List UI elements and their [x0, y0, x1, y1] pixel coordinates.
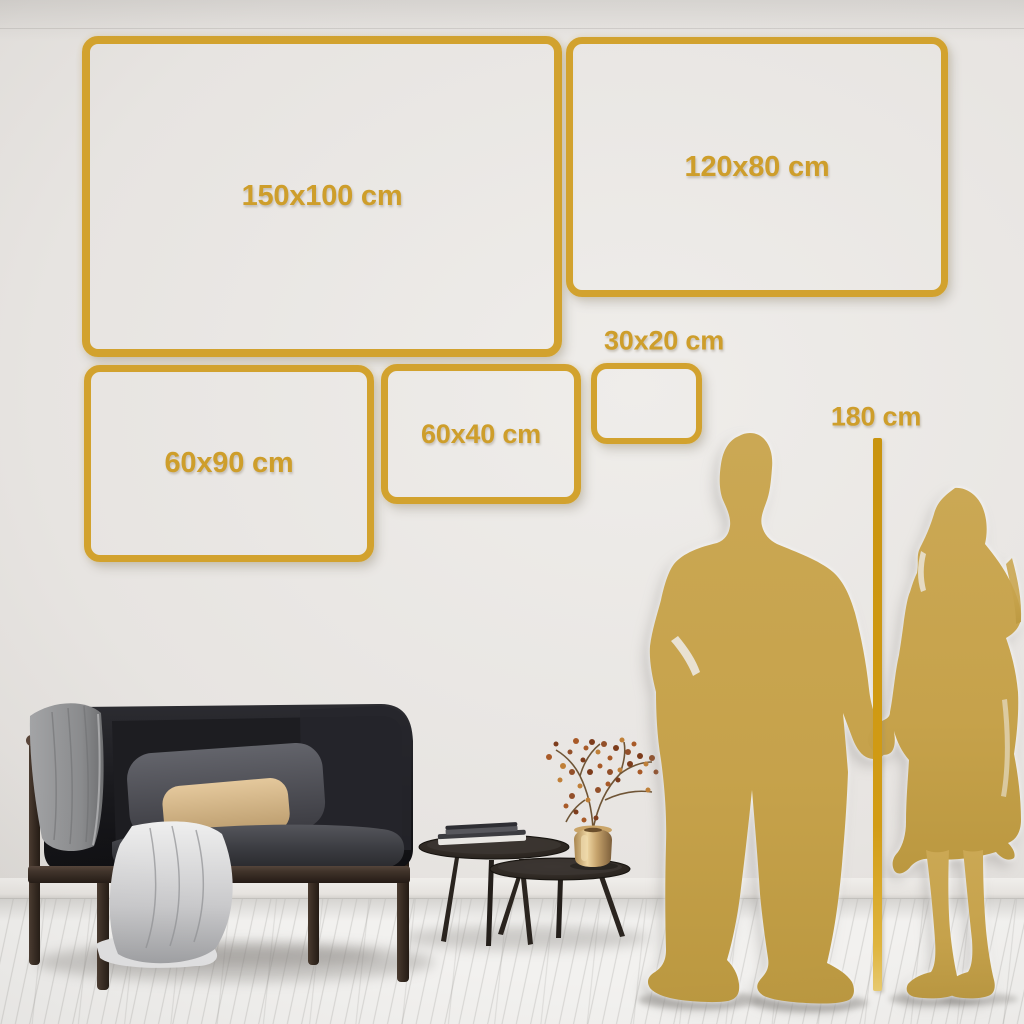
woman-silhouette	[868, 488, 1021, 874]
woman-left-leg	[907, 850, 959, 998]
gray-throw-blanket	[30, 703, 104, 851]
man-silhouette	[648, 433, 887, 1004]
scene-artwork	[0, 0, 1024, 1024]
couple-silhouette	[648, 433, 1021, 1004]
brass-vase	[574, 829, 612, 867]
coffee-tables-illustration	[419, 738, 659, 947]
height-ruler-line	[873, 438, 882, 991]
size-guide-scene: 150x100 cm 120x80 cm 60x90 cm 60x40 cm 3…	[0, 0, 1024, 1024]
height-ruler-label: 180 cm	[831, 402, 921, 433]
branch-blossoms	[546, 738, 659, 823]
